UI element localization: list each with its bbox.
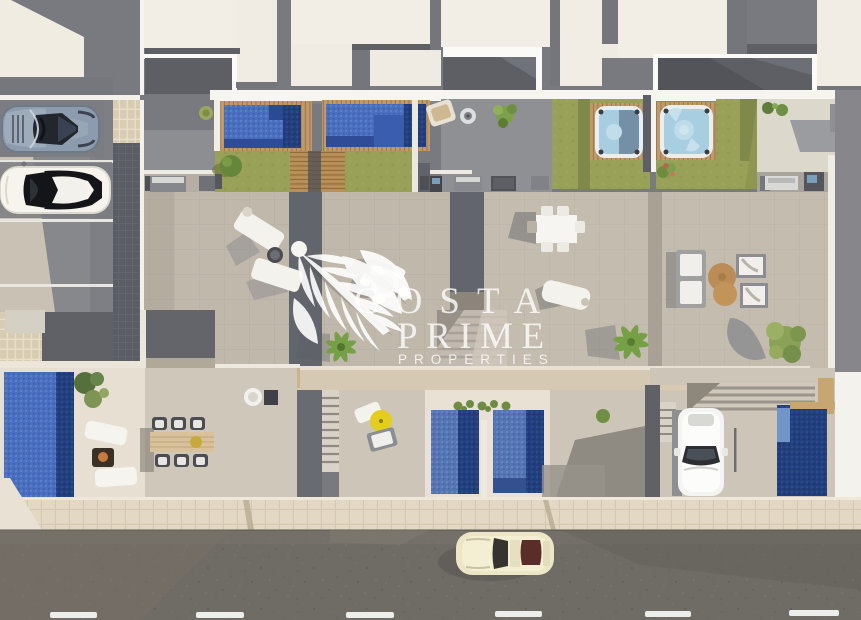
svg-text:PROPERTIES: PROPERTIES [398,352,555,367]
svg-text:PRIME: PRIME [397,316,553,357]
